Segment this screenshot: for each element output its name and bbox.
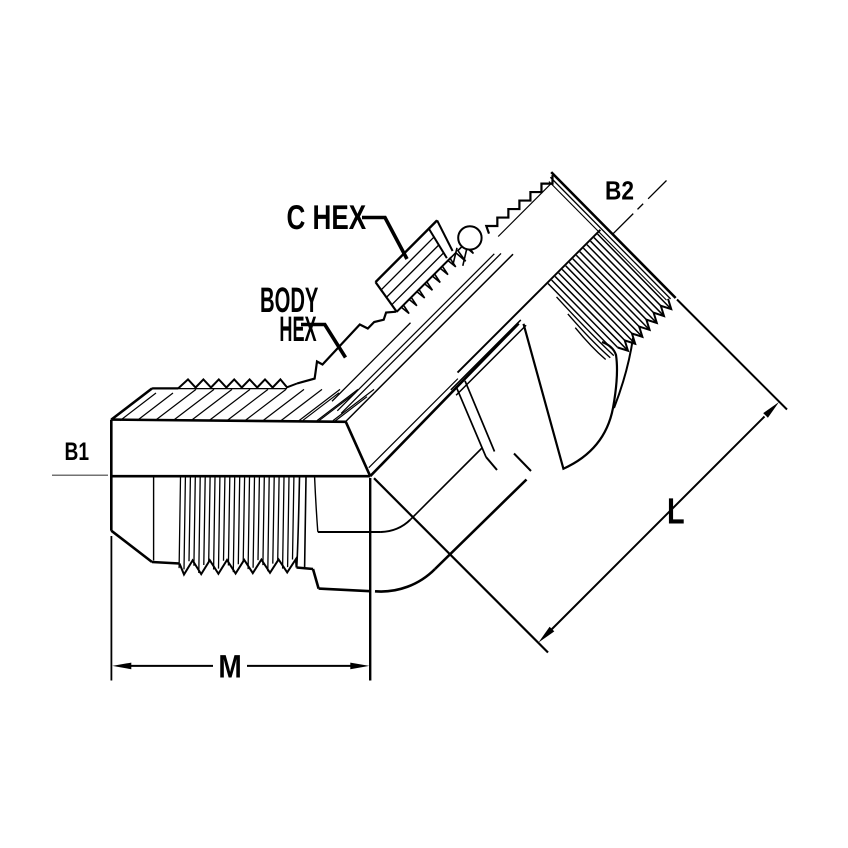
svg-text:HEX: HEX <box>279 309 316 349</box>
svg-text:L: L <box>667 491 685 532</box>
svg-text:C HEX: C HEX <box>287 199 367 237</box>
svg-text:B2: B2 <box>605 176 634 206</box>
svg-text:B1: B1 <box>65 438 90 466</box>
svg-text:M: M <box>218 648 241 684</box>
